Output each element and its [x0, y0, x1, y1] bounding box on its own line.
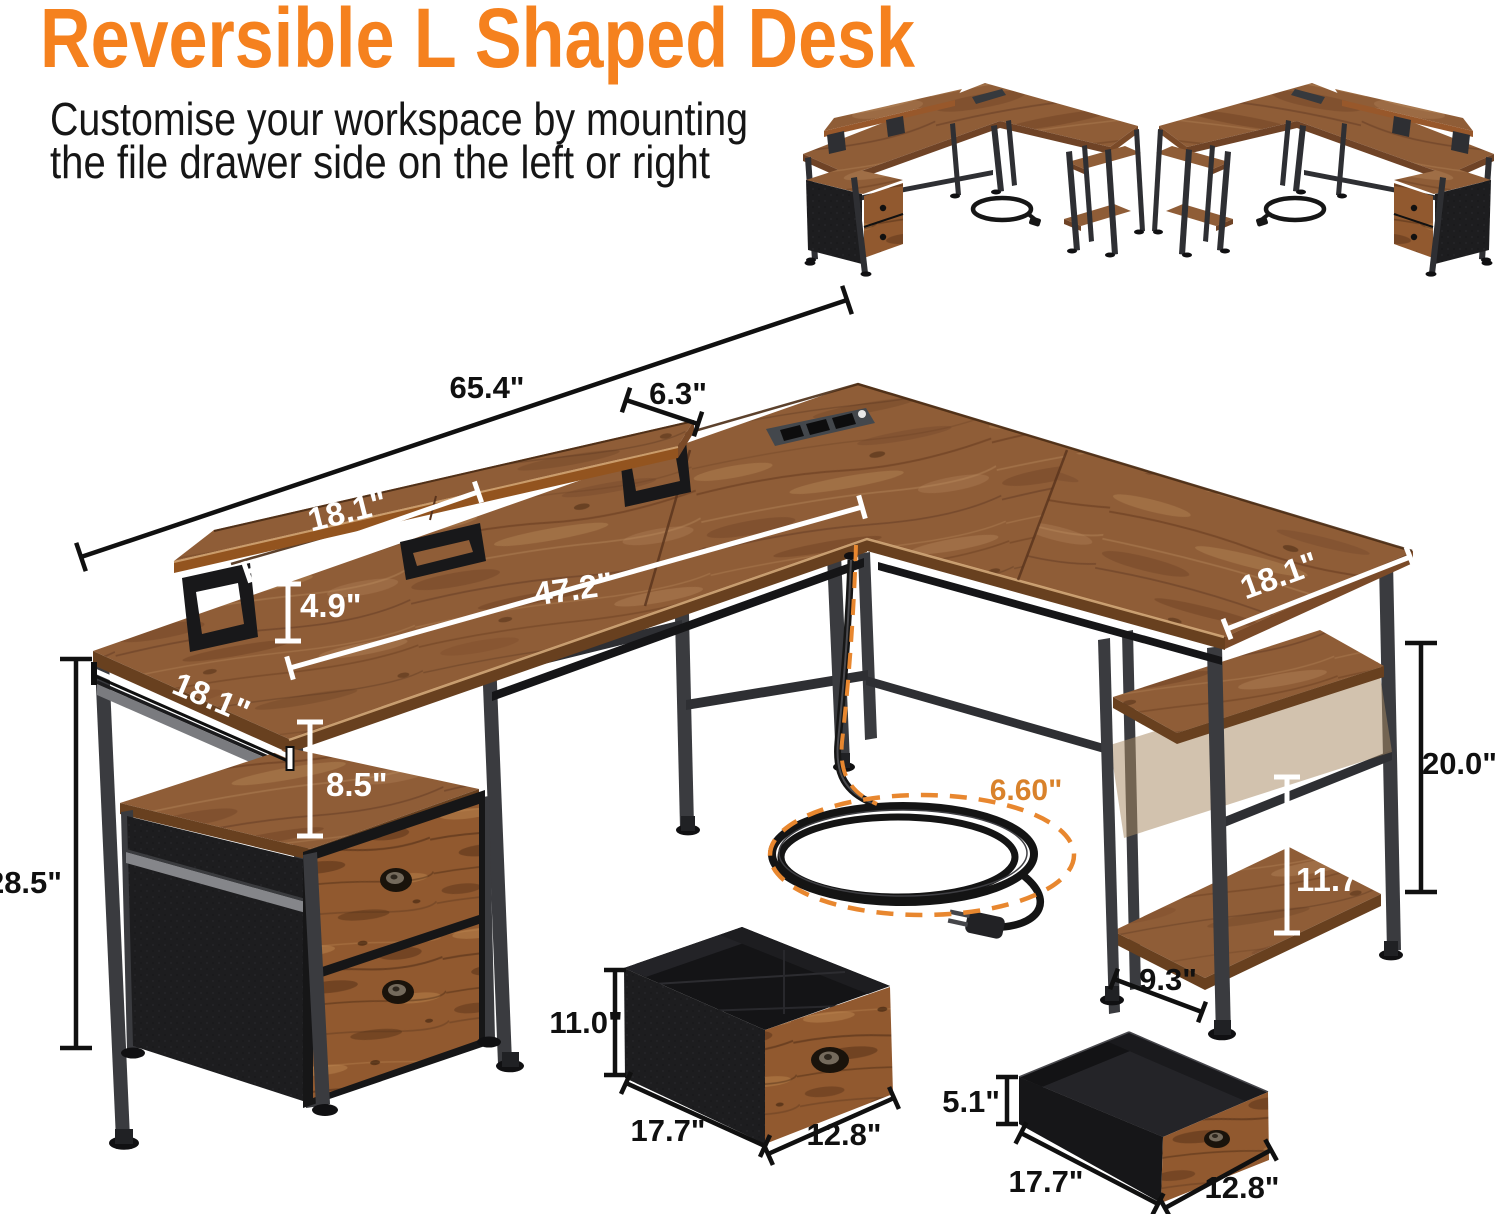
svg-text:Reversible L Shaped Desk: Reversible L Shaped Desk: [40, 0, 915, 85]
svg-text:17.7": 17.7": [1008, 1164, 1083, 1199]
svg-text:8.5": 8.5": [326, 766, 388, 803]
svg-text:4.9": 4.9": [300, 587, 362, 624]
svg-text:the file drawer side on the le: the file drawer side on the left or righ…: [50, 136, 710, 188]
svg-text:5.1": 5.1": [942, 1084, 1000, 1119]
svg-text:12.8": 12.8": [1204, 1170, 1279, 1205]
svg-text:11.0": 11.0": [549, 1005, 622, 1040]
svg-text:17.7": 17.7": [630, 1113, 705, 1148]
svg-text:11.7": 11.7": [1296, 861, 1374, 898]
svg-text:6.60": 6.60": [990, 774, 1063, 807]
svg-text:12.8": 12.8": [806, 1117, 881, 1152]
svg-text:65.4": 65.4": [449, 370, 524, 405]
svg-text:20.0": 20.0": [1422, 746, 1497, 781]
svg-text:6.3": 6.3": [649, 376, 707, 411]
svg-text:28.5": 28.5": [0, 865, 62, 900]
svg-text:9.3": 9.3": [1139, 962, 1197, 997]
